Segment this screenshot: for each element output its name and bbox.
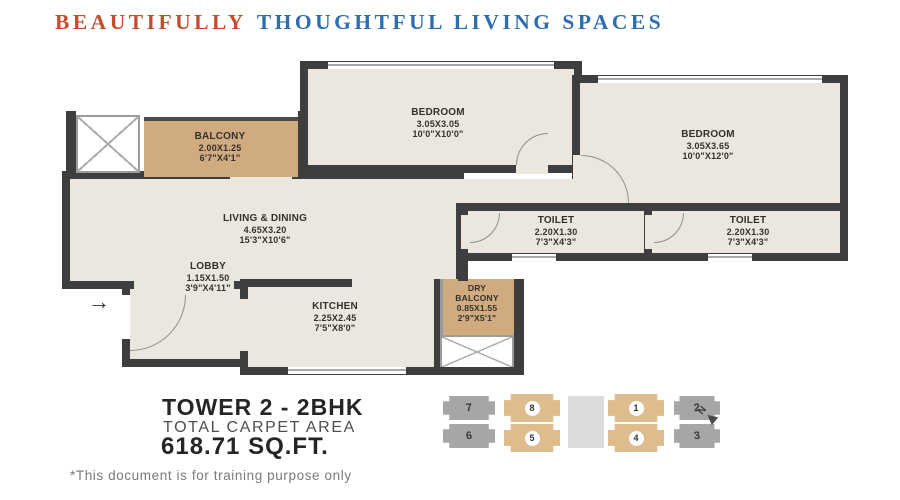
room-name: KITCHEN	[255, 301, 415, 313]
wall-segment	[432, 367, 524, 375]
room-dim-m: 0.85X1.55	[447, 303, 507, 313]
room-dim-ft: 3'9"X4'11"	[138, 283, 278, 294]
flower-bed-box	[76, 115, 140, 173]
room-dim-m: 2.00X1.25	[145, 143, 295, 154]
wall-segment	[458, 259, 468, 281]
opening-entrance	[118, 295, 130, 339]
title-highlight: BEAUTIFULLY	[55, 10, 247, 34]
title-rest: THOUGHTFUL LIVING SPACES	[257, 10, 664, 34]
room-label-living: LIVING & DINING 4.65X3.20 15'3"X10'6"	[165, 213, 365, 246]
keyplan-unit-6: 6	[443, 424, 495, 448]
keyplan-divider	[666, 394, 671, 452]
keyplan-unit-5: 5	[504, 424, 560, 452]
room-label-bedroom1: BEDROOM 3.05X3.05 10'0"X10'0"	[328, 107, 548, 140]
keyplan-divider	[498, 394, 503, 452]
room-dim-m: 3.05X3.65	[598, 141, 818, 152]
room-name: LOBBY	[138, 261, 278, 273]
window-kitchen	[288, 367, 406, 374]
window-bedroom2	[598, 76, 822, 83]
room-dim-m: 2.20X1.30	[468, 227, 644, 238]
room-name: BEDROOM	[328, 107, 548, 119]
wall-segment	[514, 279, 524, 375]
room-name: DRY BALCONY	[447, 283, 507, 303]
room-dim-m: 1.15X1.50	[138, 273, 278, 284]
room-dim-ft: 15'3"X10'6"	[165, 235, 365, 246]
room-label-toilet1: TOILET 2.20X1.30 7'3"X4'3"	[468, 215, 644, 248]
room-dim-m: 4.65X3.20	[165, 225, 365, 236]
room-dim-ft: 7'3"X4'3"	[658, 237, 838, 248]
keyplan-unit-4: 4	[608, 424, 664, 452]
disclaimer-text: *This document is for training purpose o…	[70, 468, 352, 483]
opening-lobby-kitchen	[236, 299, 252, 351]
unit-number: 1	[629, 401, 644, 416]
room-label-kitchen: KITCHEN 2.25X2.45 7'5"X8'0"	[255, 301, 415, 334]
tower-title: TOWER 2 - 2BHK	[162, 394, 363, 421]
room-label-toilet2: TOILET 2.20X1.30 7'3"X4'3"	[658, 215, 838, 248]
unit-number: 4	[629, 431, 644, 446]
room-name: BEDROOM	[598, 129, 818, 141]
room-dim-m: 2.25X2.45	[255, 313, 415, 324]
window-bedroom1	[328, 62, 554, 69]
opening-toilet2-door	[645, 215, 653, 249]
keyplan-unit-3: 3	[674, 424, 720, 448]
opening-bedroom2-door	[573, 155, 581, 203]
room-label-bedroom2: BEDROOM 3.05X3.65 10'0"X12'0"	[598, 129, 818, 162]
carpet-area-value: 618.71 SQ.FT.	[161, 433, 329, 461]
room-dim-m: 3.05X3.05	[328, 119, 548, 130]
keyplan-unit-7: 7	[443, 396, 495, 420]
page-title: BEAUTIFULLYTHOUGHTFUL LIVING SPACES	[55, 10, 664, 35]
keyplan-core	[568, 396, 604, 448]
room-label-dry-balcony: DRY BALCONY 0.85X1.55 2'9"X5'1"	[447, 283, 507, 323]
room-label-lobby: LOBBY 1.15X1.50 3'9"X4'11"	[138, 261, 278, 294]
room-name: LIVING & DINING	[165, 213, 365, 225]
window-toilet1	[512, 254, 556, 261]
room-name: BALCONY	[145, 131, 295, 143]
room-dim-ft: 2'9"X5'1"	[447, 313, 507, 323]
room-label-balcony: BALCONY 2.00X1.25 6'7"X4'1"	[145, 131, 295, 164]
wall-segment	[298, 111, 308, 171]
room-dim-ft: 7'5"X8'0"	[255, 323, 415, 334]
room-name: TOILET	[658, 215, 838, 227]
window-toilet2	[708, 254, 752, 261]
key-plan: 7 8 1 2 6 5 4 3 N	[440, 392, 740, 456]
unit-number: 5	[525, 431, 540, 446]
opening-bedroom1-door	[516, 164, 548, 174]
room-name: TOILET	[468, 215, 644, 227]
unit-number: 7	[465, 402, 473, 415]
unit-number: 8	[525, 401, 540, 416]
wall-segment	[66, 111, 76, 177]
unit-number: 6	[465, 430, 473, 443]
opening-living-kitchen	[352, 279, 434, 293]
room-dim-m: 2.20X1.30	[658, 227, 838, 238]
floor-plan-page: BEAUTIFULLYTHOUGHTFUL LIVING SPACES	[0, 0, 900, 500]
room-dim-ft: 10'0"X12'0"	[598, 151, 818, 162]
keyplan-unit-8: 8	[504, 394, 560, 422]
floor-plan: → BALCONY 2.00X1.25 6'7"X4'1" BEDROOM 3.…	[60, 55, 860, 385]
room-dim-ft: 6'7"X4'1"	[145, 153, 295, 164]
service-shaft-box	[440, 335, 514, 369]
entry-arrow-icon: →	[88, 291, 110, 313]
room-dim-ft: 7'3"X4'3"	[468, 237, 644, 248]
unit-number: 3	[693, 430, 701, 443]
room-dim-ft: 10'0"X10'0"	[328, 129, 548, 140]
keyplan-unit-1: 1	[608, 394, 664, 422]
